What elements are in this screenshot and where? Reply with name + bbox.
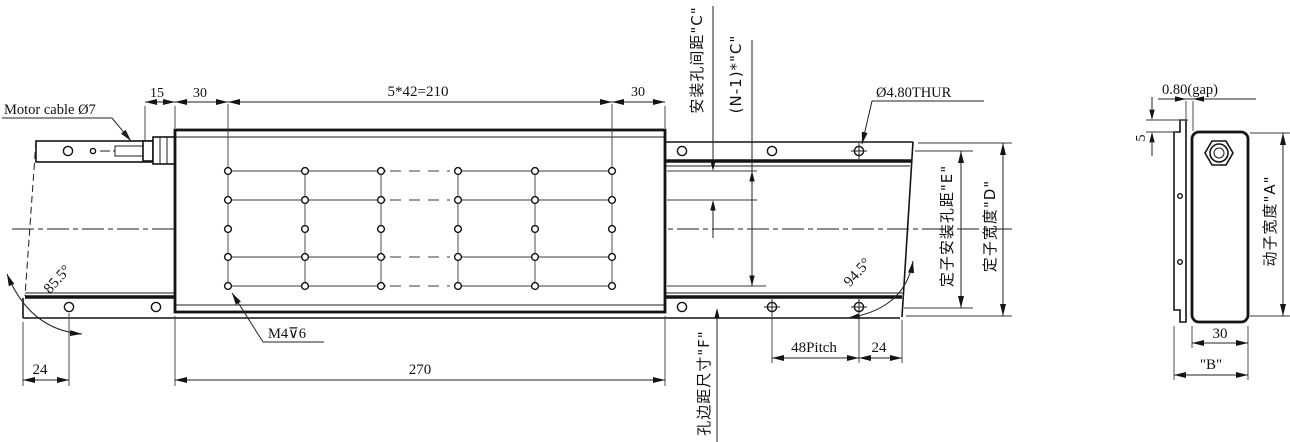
label-mover-width-a: 动子宽度"A" — [1261, 175, 1279, 266]
side-view: 0.80(gap) 5 动子宽度"A" 30 — [1134, 82, 1290, 380]
drawing-canvas: 15 30 5*42=210 30 Motor cable Ø7 Ø4.80TH… — [0, 0, 1290, 442]
dim-270: 270 — [409, 362, 432, 378]
hole-crosshair — [851, 143, 867, 159]
angle-right-label: 94.5° — [841, 255, 874, 290]
dim-24-left: 24 — [33, 362, 49, 378]
dim-24-right: 24 — [872, 340, 888, 356]
label-hole-spacing-c: 安装孔间距"C" — [688, 6, 706, 113]
dim-mover-width-a: 动子宽度"A" — [1250, 133, 1290, 316]
label-n-minus-1-c: (N-1)*"C" — [727, 35, 745, 114]
dim-30-left: 30 — [193, 86, 207, 101]
dim-gap-label: 0.80(gap) — [1162, 82, 1218, 98]
angle-left-label: 85.5° — [41, 262, 74, 297]
side-mover-body — [1192, 132, 1248, 322]
dim-side-30-label: 30 — [1213, 326, 1228, 342]
mover-body — [175, 130, 665, 312]
bottom-dimension-270: 270 — [175, 316, 665, 386]
motor-cable-callout: Motor cable Ø7 — [2, 102, 131, 141]
hex-nut — [1205, 141, 1233, 165]
front-view: 15 30 5*42=210 30 Motor cable Ø7 Ø4.80TH… — [2, 6, 1012, 442]
dim-side-b: "B" — [1174, 326, 1248, 380]
label-hole-edge-f: 孔边距尺寸"F" — [695, 330, 713, 435]
dim-30-right: 30 — [631, 85, 645, 100]
label-stator-hole-dist-e: 定子安装孔距"E" — [938, 165, 956, 287]
stator-left-slant-edge — [25, 141, 36, 296]
dim-gap: 0.80(gap) — [1158, 82, 1256, 131]
bottom-dimension-24-left: 24 — [23, 313, 69, 386]
thru-hole-label: Ø4.80THUR — [876, 85, 952, 101]
side-stator-rail — [1174, 120, 1186, 322]
dim-48pitch: 48Pitch — [791, 340, 837, 356]
cad-drawing-linear-motor: 15 30 5*42=210 30 Motor cable Ø7 Ø4.80TH… — [0, 0, 1290, 442]
thread-label: M4⊽6 — [268, 326, 306, 342]
thru-hole-callout: Ø4.80THUR — [862, 85, 984, 144]
motor-cable-label: Motor cable Ø7 — [4, 102, 96, 118]
bottom-dimension-24-right: 24 — [859, 320, 902, 363]
bottom-dimension-48pitch: 48Pitch — [772, 313, 859, 363]
hole-crosshair — [764, 299, 867, 315]
dim-hole-pitch-top: 5*42=210 — [388, 84, 449, 100]
dim-5-label: 5 — [1134, 135, 1149, 142]
label-stator-width-d: 定子宽度"D" — [981, 180, 999, 272]
dim-15: 15 — [150, 86, 164, 101]
dim-side-b-label: "B" — [1200, 357, 1222, 373]
dim-hole-edge-f: 孔边距尺寸"F" — [695, 308, 720, 442]
